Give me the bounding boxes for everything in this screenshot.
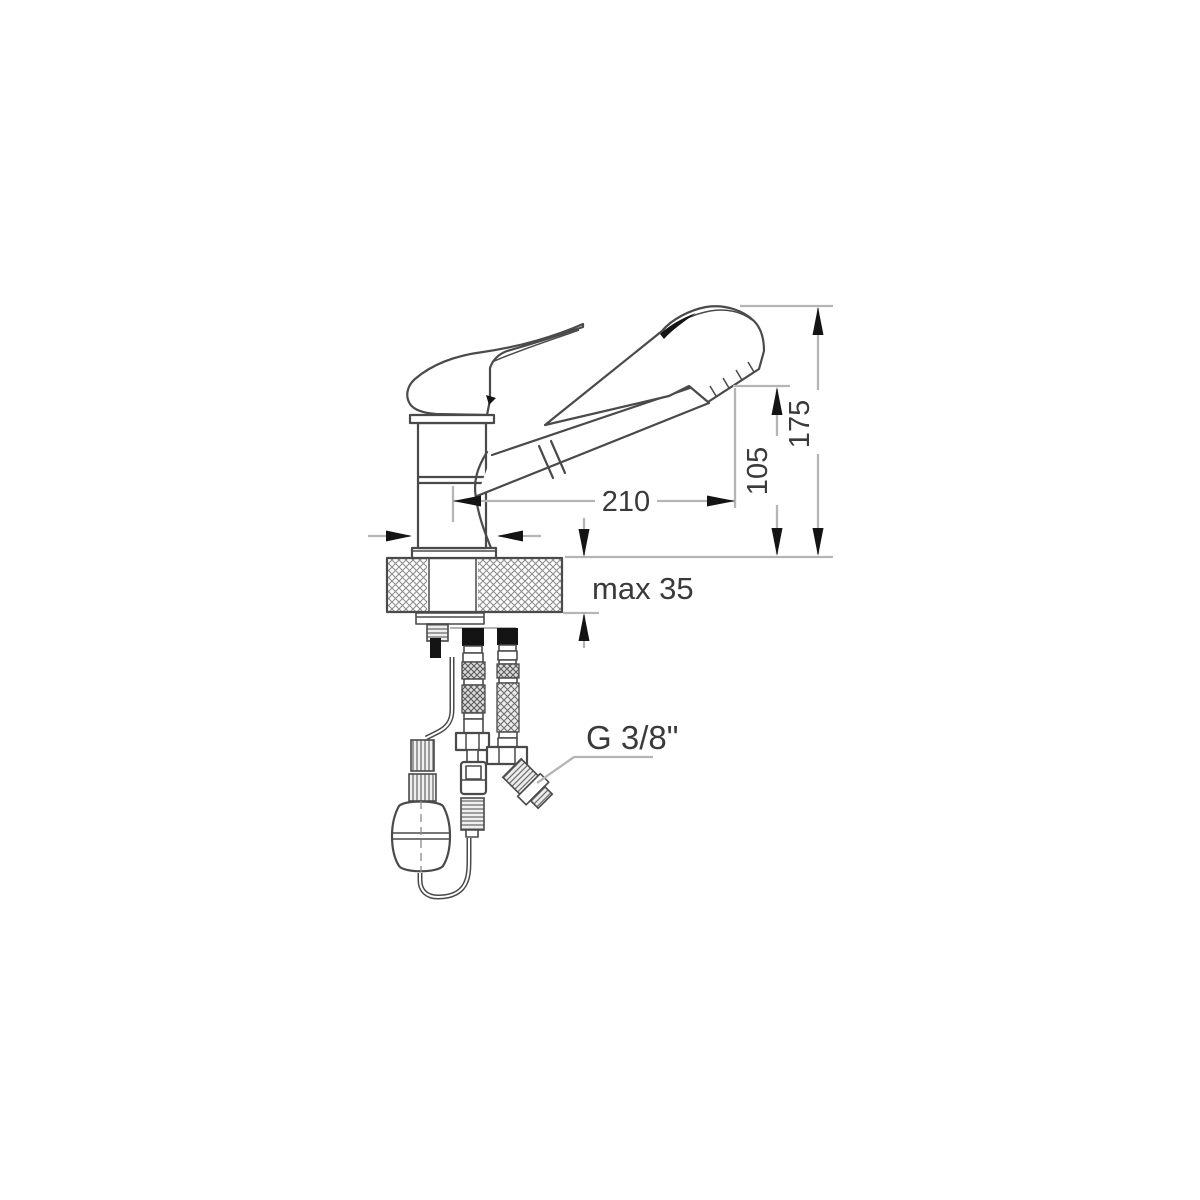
hose-counterweight <box>392 801 450 872</box>
cartridge-ring <box>410 415 494 423</box>
faucet-base <box>412 548 496 558</box>
supply-hose-right <box>487 628 557 813</box>
drawing-canvas: 210 105 175 max 35 G 3/8" <box>0 0 1200 1200</box>
under-counter-assembly <box>392 613 557 897</box>
countertop <box>387 558 562 613</box>
supply-hose-left <box>456 628 489 837</box>
label-max35: max 35 <box>592 571 694 606</box>
label-105: 105 <box>742 447 774 495</box>
hose-coupling-upper <box>411 740 434 771</box>
faucet <box>407 306 764 558</box>
dimension-max35 <box>579 518 590 648</box>
label-g38: G 3/8" <box>586 719 678 756</box>
label-210: 210 <box>602 486 650 518</box>
tap-hole-shank <box>429 558 476 613</box>
angle-fitting <box>487 747 557 813</box>
dimension-labels: 210 105 175 max 35 G 3/8" <box>586 400 816 756</box>
lever-handle <box>407 324 583 423</box>
mounting-stud <box>430 638 441 658</box>
label-175: 175 <box>784 400 816 448</box>
threaded-nipple <box>461 798 484 830</box>
hose-coupling-lower <box>409 774 436 801</box>
faucet-technical-drawing: 210 105 175 max 35 G 3/8" <box>0 0 1200 1200</box>
pullout-hose <box>409 657 452 801</box>
g38-leader-line <box>537 757 653 783</box>
outlet-valve-fitting <box>456 733 489 837</box>
